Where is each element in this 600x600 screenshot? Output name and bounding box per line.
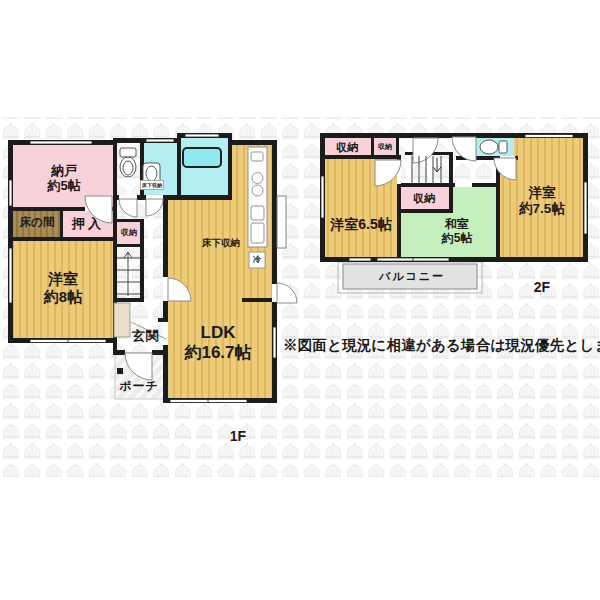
toilet-icon xyxy=(120,148,136,177)
tokonoma-name: 床の間 xyxy=(20,216,55,228)
bay-window xyxy=(277,196,286,248)
label-tokonoma: 床の間 xyxy=(20,216,55,230)
bedroom75-size: 約7.5帖 xyxy=(519,201,565,217)
bedroom8-name: 洋室 xyxy=(48,270,78,287)
label-ldk: LDK 約16.7帖 xyxy=(184,323,251,363)
closet-left-name: 収納 xyxy=(336,141,358,153)
ldk-name: LDK xyxy=(201,323,236,342)
porch-name: ポーチ xyxy=(119,379,159,393)
oshiire-name: 押入 xyxy=(72,216,104,231)
nando-name: 納戸 xyxy=(51,163,77,178)
shoe-cabinet xyxy=(114,303,130,337)
porch-pillar xyxy=(117,368,123,374)
floor2-label-text: 2F xyxy=(534,279,550,295)
floorplan-drawing xyxy=(0,0,600,600)
toilet2-icon xyxy=(480,140,507,154)
bedroom75-name: 洋室 xyxy=(529,185,556,200)
label-underfloor-storage: 床下収納 xyxy=(202,237,240,248)
label-closet-left: 収納 xyxy=(336,141,358,154)
label-washitsu: 和室 約5帖 xyxy=(442,217,473,245)
washitsu-size: 約5帖 xyxy=(442,231,473,245)
nando-size: 約5帖 xyxy=(47,178,80,193)
label-underfloor-storage-small: 床下収納 xyxy=(140,180,164,190)
label-oshiire: 押入 xyxy=(72,216,104,231)
bathtub-icon xyxy=(183,148,221,167)
label-bedroom8: 洋室 約8帖 xyxy=(44,270,82,305)
label-bedroom65: 洋室6.5帖 xyxy=(330,216,391,233)
bedroom8-size: 約8帖 xyxy=(44,288,82,306)
hall-closet-name: 収納 xyxy=(121,228,137,237)
label-nando: 納戸 約5帖 xyxy=(47,163,80,194)
floor1-label-text: 1F xyxy=(230,428,246,444)
disclaimer-text: ※図面と現況に相違がある場合は現況優先とします xyxy=(283,336,600,355)
underfloor-storage-name: 床下収納 xyxy=(202,237,240,248)
balcony-name: バルコニー xyxy=(379,270,445,282)
closet-left-small-name: 収納 xyxy=(378,143,392,150)
label-floor1: 1F xyxy=(230,428,246,445)
label-refrigerator: 冷 xyxy=(253,255,261,264)
floorplan-page: 納戸 約5帖 床の間 押入 収納 洋室 約8帖 玄関 ポーチ LDK 約16.7… xyxy=(0,0,600,600)
label-porch: ポーチ xyxy=(119,379,159,393)
underfloor-storage-small-name: 床下収納 xyxy=(142,182,162,188)
label-bedroom75: 洋室 約7.5帖 xyxy=(519,185,565,217)
label-balcony: バルコニー xyxy=(379,270,445,283)
label-entrance: 玄関 xyxy=(132,328,160,343)
refrigerator-name: 冷 xyxy=(253,255,261,264)
ldk-size: 約16.7帖 xyxy=(184,343,251,363)
bedroom65-name: 洋室6.5帖 xyxy=(330,216,391,232)
label-closet-left-small: 収納 xyxy=(378,143,392,151)
closet-mid-name: 収納 xyxy=(413,192,435,204)
entrance-name: 玄関 xyxy=(132,328,160,343)
washitsu-name: 和室 xyxy=(445,217,469,231)
kitchen-counter xyxy=(248,147,267,247)
label-floor2: 2F xyxy=(534,279,550,296)
disclaimer-span: ※図面と現況に相違がある場合は現況優先とします xyxy=(283,337,600,353)
label-hall-closet: 収納 xyxy=(121,228,137,237)
label-closet-mid: 収納 xyxy=(413,192,435,205)
